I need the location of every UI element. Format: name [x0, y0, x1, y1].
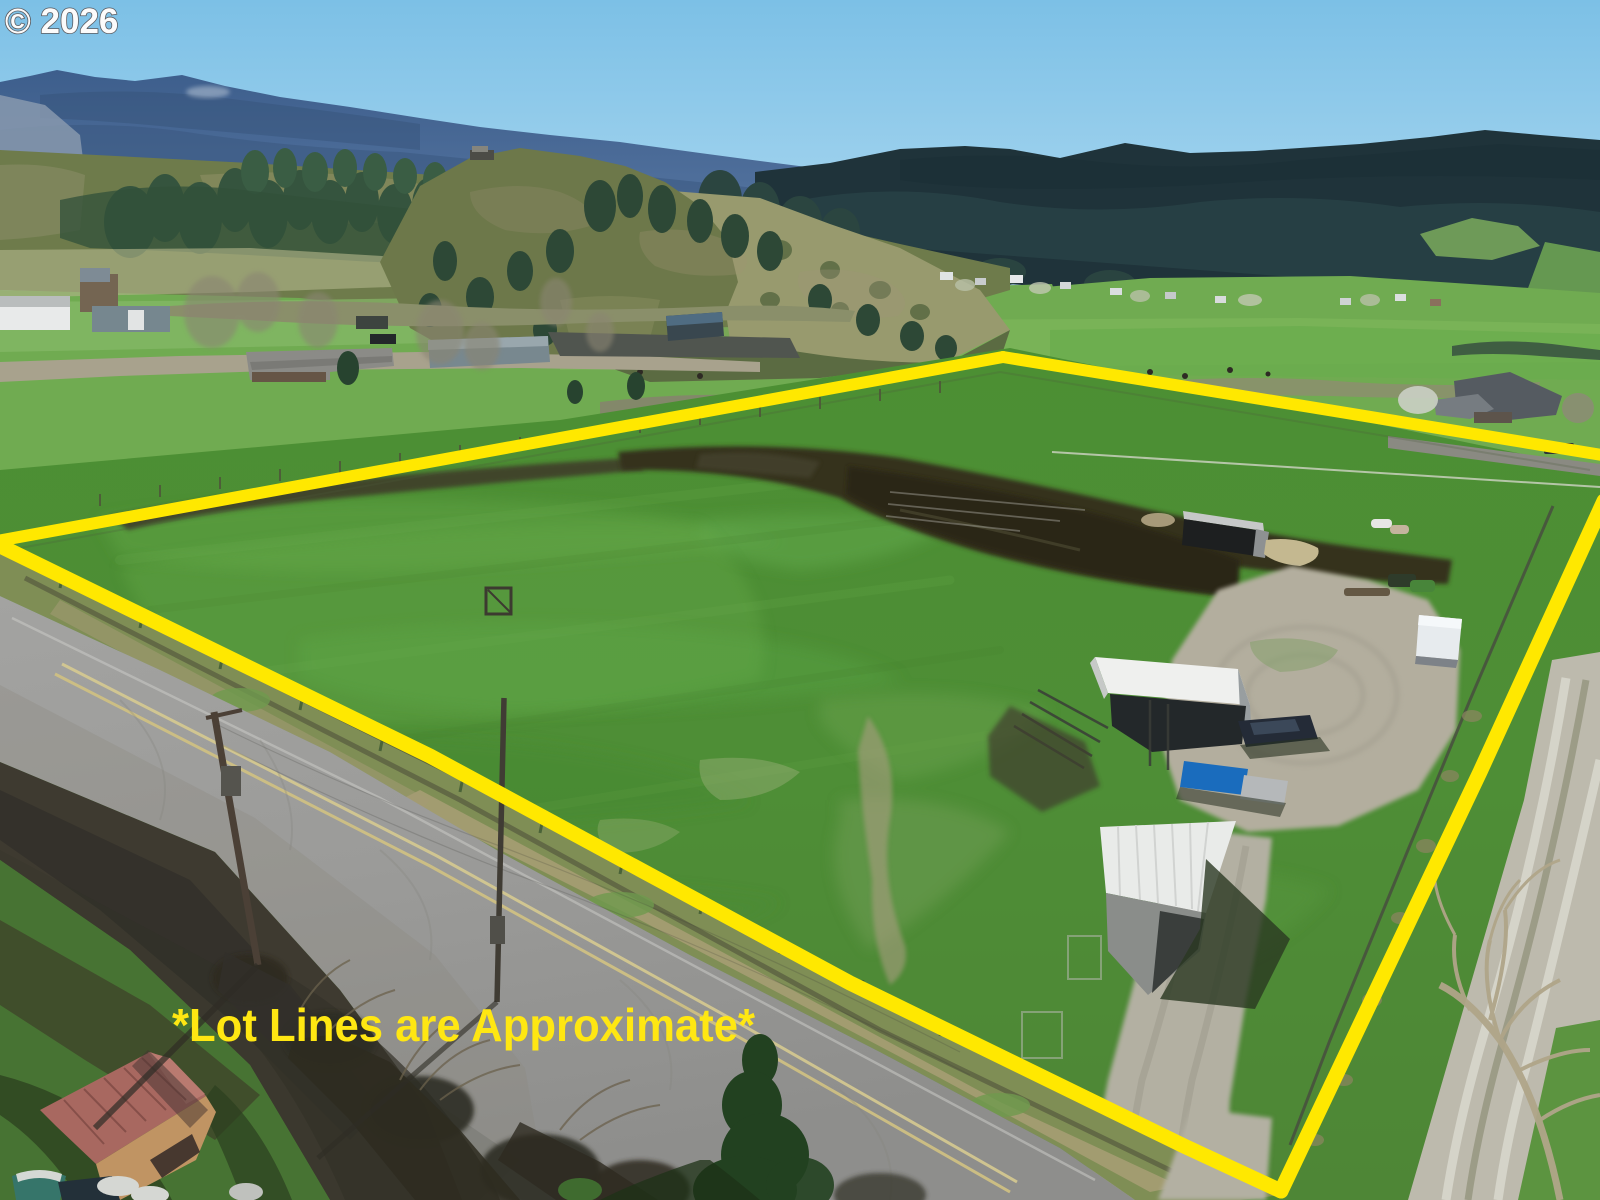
svg-text:*Lot Lines are Approximate*: *Lot Lines are Approximate*: [172, 999, 755, 1051]
svg-text:© 2026: © 2026: [5, 2, 118, 41]
